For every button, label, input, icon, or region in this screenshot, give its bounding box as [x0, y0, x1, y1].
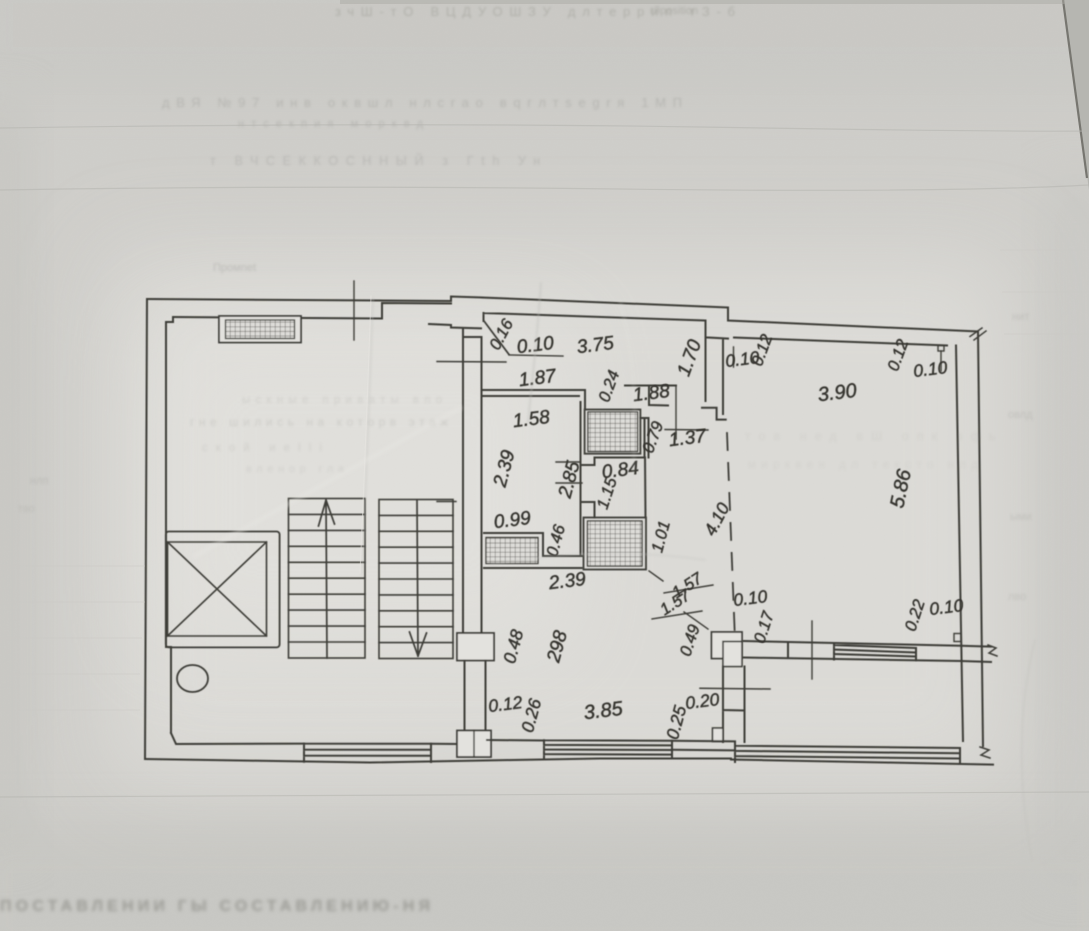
- svg-text:3.90: 3.90: [817, 380, 858, 407]
- svg-text:ыми: ыми: [1010, 511, 1032, 523]
- svg-text:лво: лво: [1008, 591, 1026, 603]
- svg-text:гне шились на которв этаж: гне шились на которв этаж: [190, 417, 448, 429]
- svg-text:нлп: нлп: [30, 475, 48, 487]
- svg-text:0.20: 0.20: [684, 689, 721, 713]
- svg-text:нтсекпия морквд: нтсекпия морквд: [238, 118, 424, 130]
- svg-text:0.10: 0.10: [928, 595, 965, 619]
- svg-text:0.10: 0.10: [732, 586, 769, 610]
- svg-text:ПОСТАВЛЕНИИ ГЫ СОСТАВЛЕНИЮ-НЯ: ПОСТАВЛЕНИИ ГЫ СОСТАВЛЕНИЮ-НЯ: [0, 898, 430, 915]
- svg-text:нит: нит: [1012, 311, 1029, 323]
- svg-text:Промnet: Промnet: [213, 262, 256, 274]
- svg-text:тво: тво: [18, 503, 35, 515]
- svg-text:овлд: овлд: [1008, 409, 1033, 421]
- svg-text:гйposition: гйposition: [650, 5, 698, 17]
- svg-text:0.10: 0.10: [912, 357, 949, 381]
- svg-text:0.12: 0.12: [487, 692, 524, 716]
